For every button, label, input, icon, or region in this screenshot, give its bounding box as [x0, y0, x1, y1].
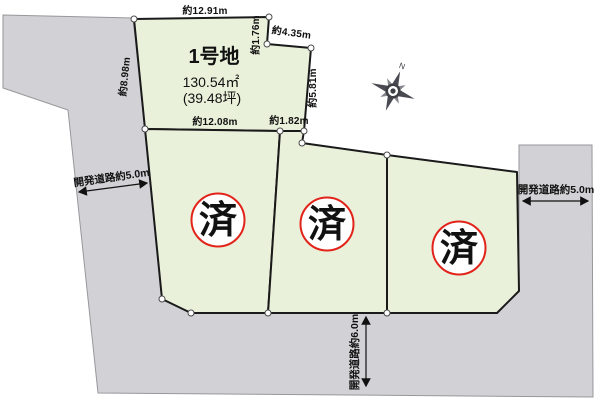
dim-right: 約5.81m: [306, 68, 319, 108]
plot-1-area-tsubo: (39.48坪): [183, 90, 241, 106]
road-right-label: 開発道路約5.0m: [518, 183, 594, 196]
plot-1-area-m2: 130.54㎡: [183, 74, 240, 90]
vertex-dot: [277, 128, 283, 134]
vertex-dot: [308, 45, 314, 51]
sold-stamp-text: 済: [308, 204, 347, 246]
sold-stamp: 済: [301, 198, 354, 251]
vertex-dot: [142, 126, 148, 132]
dim-top: 約12.91m: [182, 4, 227, 17]
vertex-dot: [188, 310, 194, 316]
dim-ne-vertical: 約1.76m: [249, 15, 262, 55]
sold-stamp: 済: [433, 222, 486, 275]
vertex-dot: [159, 296, 165, 302]
vertex-dot: [131, 16, 137, 22]
vertex-dot: [266, 14, 272, 20]
vertex-dot: [299, 140, 305, 146]
sold-stamp-text: 済: [440, 228, 479, 270]
vertex-dot: [384, 310, 390, 316]
sold-stamp: 済: [192, 194, 245, 247]
vertex-dot: [384, 152, 390, 158]
vertex-dot: [264, 41, 270, 47]
land-plot-map: 1号地 130.54㎡ (39.48坪) 約12.91m 約8.98m 約1.7…: [0, 0, 600, 402]
plot-1-name: 1号地: [188, 45, 239, 68]
dim-bottom-right: 約1.82m: [269, 114, 309, 127]
road-bottom-label: 開発道路約6.0m: [348, 314, 361, 390]
vertex-dot: [301, 128, 307, 134]
dim-bottom: 約12.08m: [192, 115, 237, 128]
plot-map-canvas: 1号地 130.54㎡ (39.48坪) 約12.91m 約8.98m 約1.7…: [0, 0, 600, 402]
sold-stamp-text: 済: [199, 200, 238, 242]
vertex-dot: [265, 310, 271, 316]
